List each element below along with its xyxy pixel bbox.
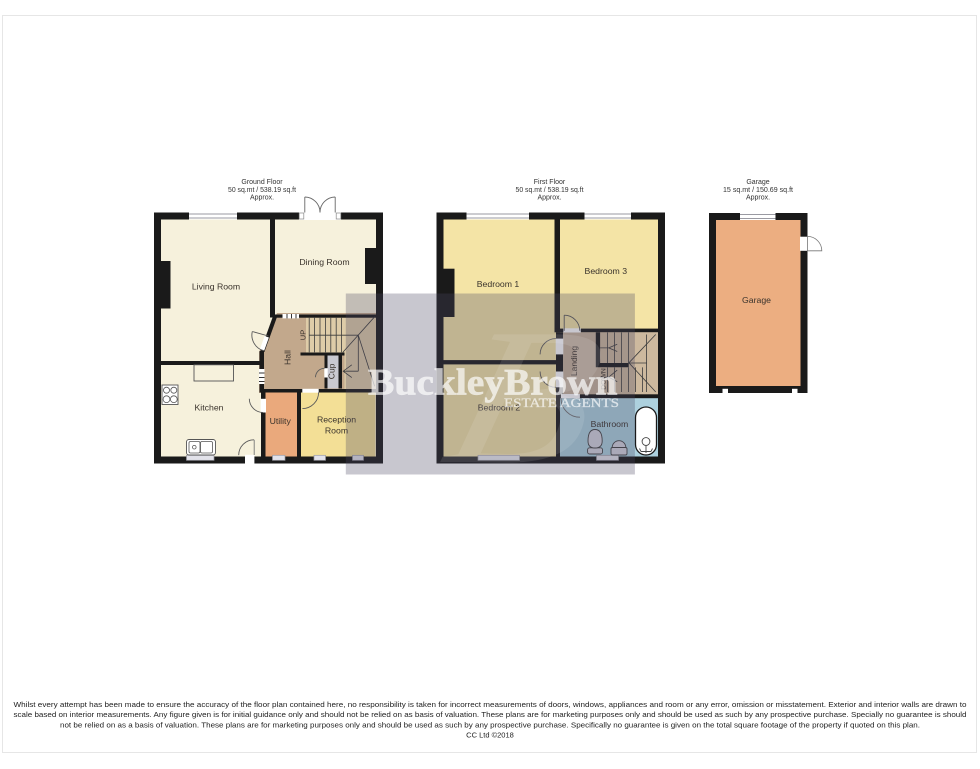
svg-text:Approx.: Approx. xyxy=(537,195,561,202)
svg-text:Ground Floor: Ground Floor xyxy=(241,179,283,186)
svg-text:Bedroom 3: Bedroom 3 xyxy=(585,266,628,276)
svg-text:Hall: Hall xyxy=(283,350,293,365)
svg-text:Whilst every attempt has been: Whilst every attempt has been made to en… xyxy=(14,700,967,709)
svg-text:not be relied on as a basis of: not be relied on as a basis of valuation… xyxy=(60,721,920,730)
svg-text:15 sq.mt / 150.69 sq.ft: 15 sq.mt / 150.69 sq.ft xyxy=(723,187,793,194)
svg-text:Cup: Cup xyxy=(327,363,337,379)
svg-text:CC Ltd ©2018: CC Ltd ©2018 xyxy=(466,731,514,740)
svg-text:Utility: Utility xyxy=(270,416,292,426)
svg-text:Dining Room: Dining Room xyxy=(299,257,349,267)
svg-text:50 sq.mt / 538.19 sq.ft: 50 sq.mt / 538.19 sq.ft xyxy=(516,187,584,194)
svg-text:Room: Room xyxy=(325,426,348,436)
svg-text:50 sq.mt / 538.19 sq.ft: 50 sq.mt / 538.19 sq.ft xyxy=(228,187,296,194)
svg-text:Garage: Garage xyxy=(746,179,769,186)
svg-text:Kitchen: Kitchen xyxy=(195,403,224,413)
svg-text:Approx.: Approx. xyxy=(250,195,274,202)
svg-text:First Floor: First Floor xyxy=(534,179,566,186)
svg-text:Bedroom 1: Bedroom 1 xyxy=(477,279,520,289)
svg-text:Living Room: Living Room xyxy=(192,282,240,292)
svg-text:scale based on interior measur: scale based on interior measurements. An… xyxy=(14,710,967,719)
svg-text:Garage: Garage xyxy=(742,295,771,305)
svg-text:Approx.: Approx. xyxy=(746,195,770,202)
svg-text:ESTATE AGENTS: ESTATE AGENTS xyxy=(504,396,619,410)
svg-text:UP: UP xyxy=(299,330,308,340)
